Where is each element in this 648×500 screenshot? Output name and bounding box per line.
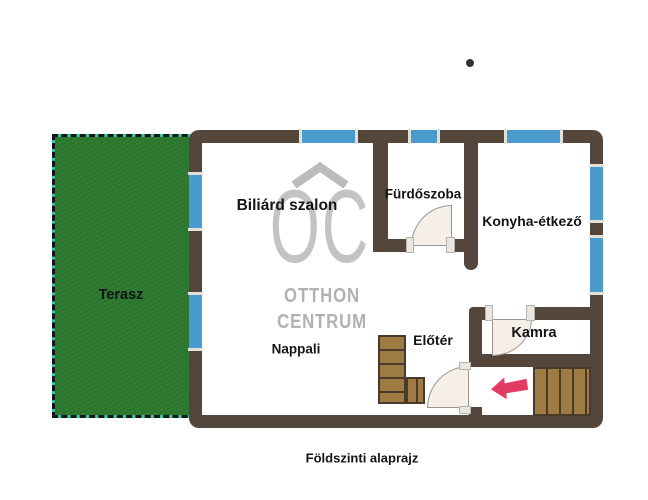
room-label-living: Nappali bbox=[272, 342, 321, 357]
window-top-2 bbox=[411, 130, 437, 143]
floorplan-canvas: OC OTTHON CENTRUM Biliárd szalon Fürdősz… bbox=[0, 0, 648, 500]
wall-foyer-upper bbox=[469, 320, 482, 366]
door-bathroom-jamb-right bbox=[446, 237, 455, 253]
window-left-1 bbox=[189, 175, 202, 228]
entrance-arrow-icon bbox=[489, 374, 531, 403]
terrace-lawn bbox=[55, 137, 197, 415]
door-foyer-jamb-bottom bbox=[459, 406, 471, 414]
watermark-text-centrum: CENTRUM bbox=[256, 310, 387, 334]
door-bathroom-jamb-left bbox=[406, 237, 414, 253]
door-pantry-jamb-right bbox=[526, 305, 535, 321]
door-foyer-jamb-top bbox=[459, 362, 471, 370]
window-top-3 bbox=[507, 130, 560, 143]
wall-bathroom-kitchen bbox=[464, 143, 478, 270]
dot-marker bbox=[466, 59, 474, 67]
window-right-1 bbox=[590, 167, 603, 220]
room-label-kitchen: Konyha-étkező bbox=[482, 213, 582, 229]
floorplan-caption: Földszinti alaprajz bbox=[306, 451, 419, 466]
window-top-1 bbox=[302, 130, 355, 143]
room-label-bathroom: Fürdőszoba bbox=[385, 187, 462, 202]
terrace-area bbox=[52, 134, 197, 418]
stairs-entry bbox=[533, 367, 591, 416]
room-label-billiard: Biliárd szalon bbox=[237, 197, 338, 215]
wall-pantry-top-right bbox=[531, 307, 591, 320]
room-label-terrace: Terasz bbox=[99, 287, 144, 303]
room-label-foyer: Előtér bbox=[413, 332, 453, 348]
window-left-2 bbox=[189, 295, 202, 348]
stairs-foyer-flight bbox=[378, 335, 406, 404]
window-right-2 bbox=[590, 238, 603, 292]
stairs-foyer-landing bbox=[406, 377, 425, 404]
wall-pantry-bottom bbox=[469, 354, 591, 367]
watermark-text-otthon: OTTHON bbox=[256, 284, 387, 308]
door-pantry-jamb-left bbox=[485, 305, 493, 321]
room-label-pantry: Kamra bbox=[511, 325, 556, 341]
